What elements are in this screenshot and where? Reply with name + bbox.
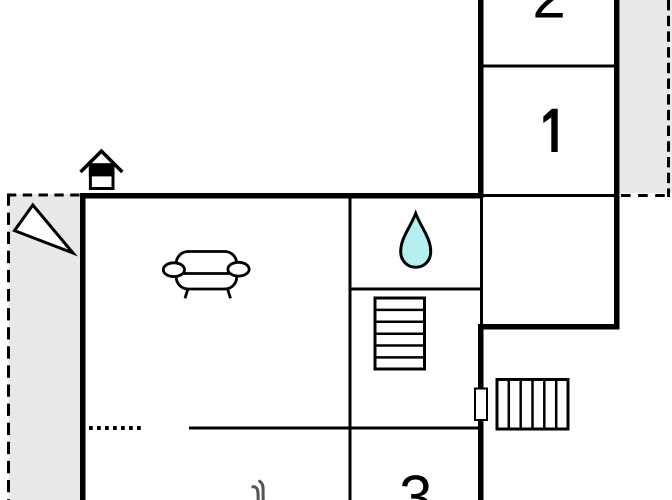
svg-text:3: 3: [399, 464, 432, 500]
svg-text:2: 2: [532, 0, 565, 31]
